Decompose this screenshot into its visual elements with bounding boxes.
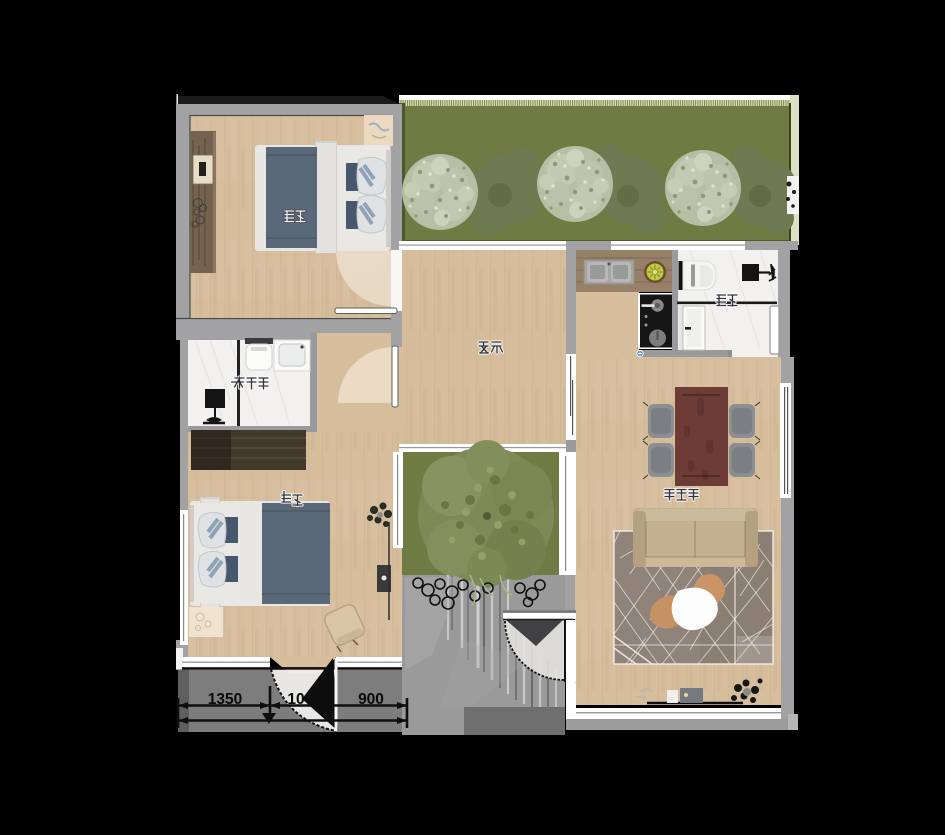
svg-text:1350: 1350 [208, 691, 242, 708]
svg-text:900: 900 [358, 691, 384, 708]
svg-text:10: 10 [287, 691, 304, 708]
